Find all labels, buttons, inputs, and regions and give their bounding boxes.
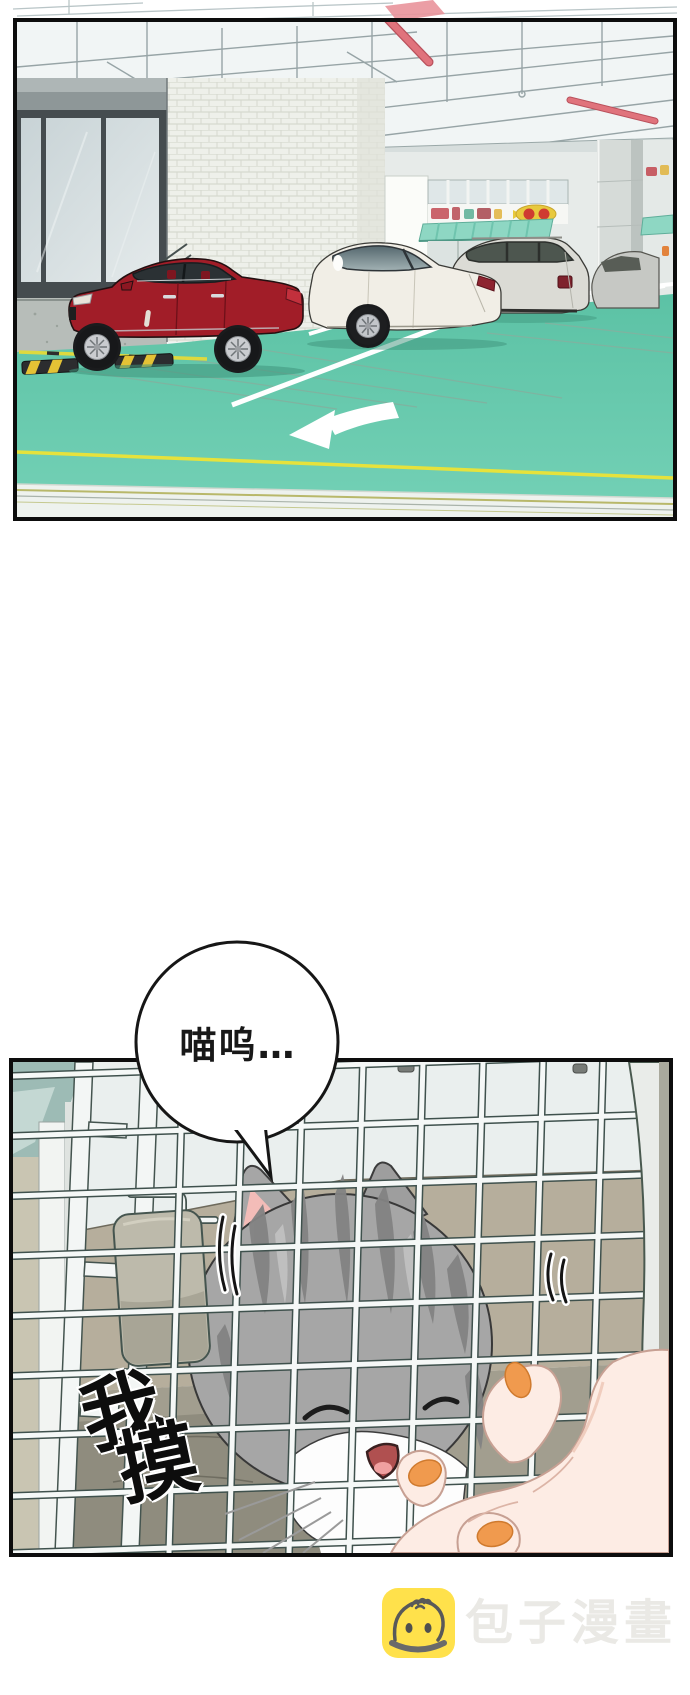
comic-page: 喵呜… 我 摸 包子漫畫 (0, 0, 690, 1695)
baozi-bun-icon (382, 1588, 455, 1658)
panel-parking-garage (13, 18, 677, 521)
front-wheel (76, 326, 118, 368)
rear-wheel (217, 328, 259, 370)
watermark-text: 包子漫畫 (465, 1588, 677, 1658)
white-car-mirror (333, 255, 343, 271)
sfx-char-2: 摸 (111, 1417, 206, 1512)
car-headrest (201, 271, 210, 280)
carrier-latch-plate (113, 1209, 211, 1367)
car-headrest (167, 270, 176, 279)
speech-bubble-text: 喵呜… (140, 1022, 336, 1070)
carrier-top-nub (573, 1064, 587, 1073)
orange-sign-dot (662, 246, 669, 256)
cat-tongue (374, 1462, 392, 1474)
watermark: 包子漫畫 (382, 1588, 677, 1658)
